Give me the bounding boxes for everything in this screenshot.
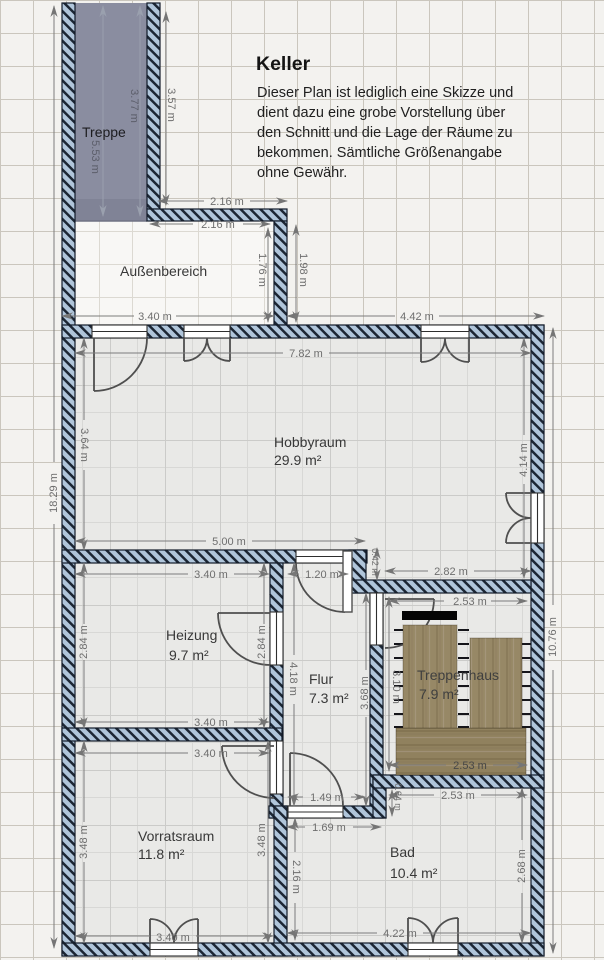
svg-text:1.49 m: 1.49 m	[310, 792, 344, 804]
svg-text:29.9 m²: 29.9 m²	[274, 452, 322, 468]
svg-text:3.77 m: 3.77 m	[128, 89, 140, 123]
svg-text:4.14 m: 4.14 m	[518, 443, 530, 477]
svg-text:Außenbereich: Außenbereich	[120, 263, 207, 279]
svg-text:Heizung: Heizung	[166, 627, 217, 643]
svg-text:2.16 m: 2.16 m	[290, 860, 302, 894]
svg-text:Treppe: Treppe	[82, 124, 126, 140]
svg-text:18.29 m: 18.29 m	[48, 473, 60, 513]
svg-text:bekommen. Sämtliche Größenanga: bekommen. Sämtliche Größenangabe	[257, 145, 502, 161]
svg-text:Treppenhaus: Treppenhaus	[417, 667, 499, 683]
svg-text:1.20 m: 1.20 m	[305, 569, 339, 581]
svg-text:Vorratsraum: Vorratsraum	[138, 828, 214, 844]
svg-text:3.57 m: 3.57 m	[165, 88, 177, 122]
svg-text:3.40 m: 3.40 m	[138, 311, 172, 323]
svg-text:Bad: Bad	[390, 844, 415, 860]
svg-text:3.40 m: 3.40 m	[194, 569, 228, 581]
svg-text:3.40 m: 3.40 m	[194, 717, 228, 729]
svg-text:3.48 m: 3.48 m	[78, 825, 90, 859]
svg-text:7.3 m²: 7.3 m²	[309, 690, 349, 706]
svg-text:2.16 m: 2.16 m	[201, 219, 235, 231]
svg-text:9.7 m²: 9.7 m²	[169, 647, 209, 663]
svg-text:2.84 m: 2.84 m	[78, 625, 90, 659]
svg-text:1.69 m: 1.69 m	[312, 822, 346, 834]
svg-text:3.10 m: 3.10 m	[390, 670, 402, 704]
svg-text:den Schnitt und die Lage der R: den Schnitt und die Lage der Räume zu	[257, 125, 513, 141]
svg-text:4.42 m: 4.42 m	[400, 311, 434, 323]
svg-text:dient dazu eine grobe Vorstell: dient dazu eine grobe Vorstellung über	[257, 105, 505, 121]
svg-text:3.48 m: 3.48 m	[256, 823, 268, 857]
svg-text:Flur: Flur	[309, 671, 333, 687]
svg-text:Keller: Keller	[256, 53, 311, 75]
svg-text:7.82 m: 7.82 m	[289, 348, 323, 360]
svg-text:Dieser Plan ist lediglich eine: Dieser Plan ist lediglich eine Skizze un…	[257, 85, 513, 101]
svg-text:1.98 m: 1.98 m	[297, 253, 309, 287]
svg-text:2.84 m: 2.84 m	[256, 625, 268, 659]
svg-text:Hobbyraum: Hobbyraum	[274, 434, 346, 450]
svg-text:2.53 m: 2.53 m	[453, 760, 487, 772]
svg-text:10.4 m²: 10.4 m²	[390, 865, 438, 881]
svg-text:3.68 m: 3.68 m	[359, 676, 371, 710]
svg-text:10.76 m: 10.76 m	[547, 617, 559, 657]
svg-text:0.64 m: 0.64 m	[393, 783, 403, 811]
svg-text:11.8 m²: 11.8 m²	[138, 846, 185, 862]
svg-text:ohne Gewähr.: ohne Gewähr.	[257, 165, 347, 181]
svg-text:5.00 m: 5.00 m	[212, 536, 246, 548]
svg-text:5.53 m: 5.53 m	[89, 140, 101, 174]
svg-text:2.82 m: 2.82 m	[434, 566, 468, 578]
svg-text:1.76 m: 1.76 m	[256, 253, 268, 287]
svg-text:3.40 m: 3.40 m	[156, 932, 190, 944]
svg-text:2.16 m: 2.16 m	[210, 196, 244, 208]
svg-text:3.64 m: 3.64 m	[78, 428, 90, 462]
svg-text:2.53 m: 2.53 m	[453, 596, 487, 608]
svg-text:4.22 m: 4.22 m	[383, 928, 417, 940]
svg-text:2.53 m: 2.53 m	[441, 790, 475, 802]
svg-text:7.9 m²: 7.9 m²	[419, 686, 459, 702]
svg-text:3.40 m: 3.40 m	[194, 748, 228, 760]
svg-text:2.68 m: 2.68 m	[516, 849, 528, 883]
svg-text:4.18 m: 4.18 m	[287, 662, 299, 696]
svg-text:0.42 m: 0.42 m	[370, 548, 380, 576]
